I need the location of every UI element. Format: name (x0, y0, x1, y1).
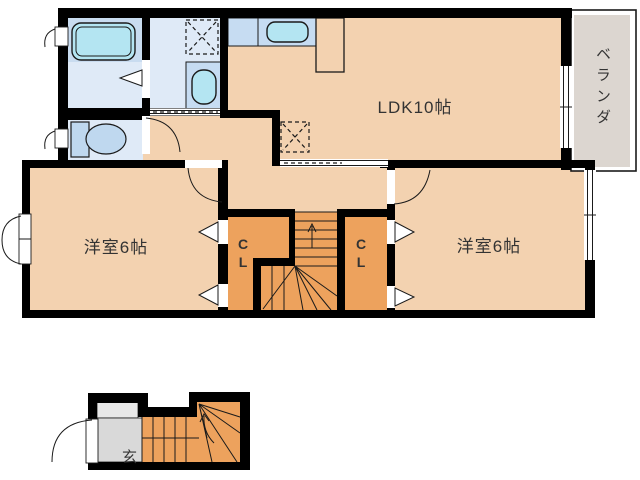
ldk-label: LDK10帖 (355, 93, 475, 118)
kitchen-sink-icon (267, 22, 308, 42)
closet-right-label-l: L (353, 253, 369, 271)
closet-right-label: C L (353, 235, 369, 271)
bathtub-icon (72, 23, 135, 60)
toilet-icon (71, 122, 126, 157)
washroom-sliding-door (150, 109, 220, 116)
floor-plan: LDK10帖 洋室6帖 洋室6帖 C L C L ベランダ 玄 (0, 0, 640, 480)
west-room-left-label: 洋室6帖 (56, 233, 176, 258)
entrance-1f (52, 392, 250, 470)
right-room-window-icon (584, 170, 596, 260)
west-room-right-label: 洋室6帖 (429, 232, 549, 257)
closet-left-label-c: C (235, 235, 251, 253)
sink-icon (186, 62, 222, 110)
closet-left-label: C L (235, 235, 251, 271)
casement-window-icon (2, 214, 31, 264)
veranda-label: ベランダ (592, 46, 613, 156)
veranda-window-icon (560, 66, 572, 148)
closet-left-label-l: L (235, 253, 251, 271)
ldk-sliding-door (280, 159, 388, 167)
bathroom-floor (68, 62, 143, 112)
entrance-step (97, 402, 138, 418)
entrance-label: 玄 (122, 446, 137, 467)
entrance-door (52, 419, 98, 463)
closet-right-label-c: C (353, 235, 369, 253)
